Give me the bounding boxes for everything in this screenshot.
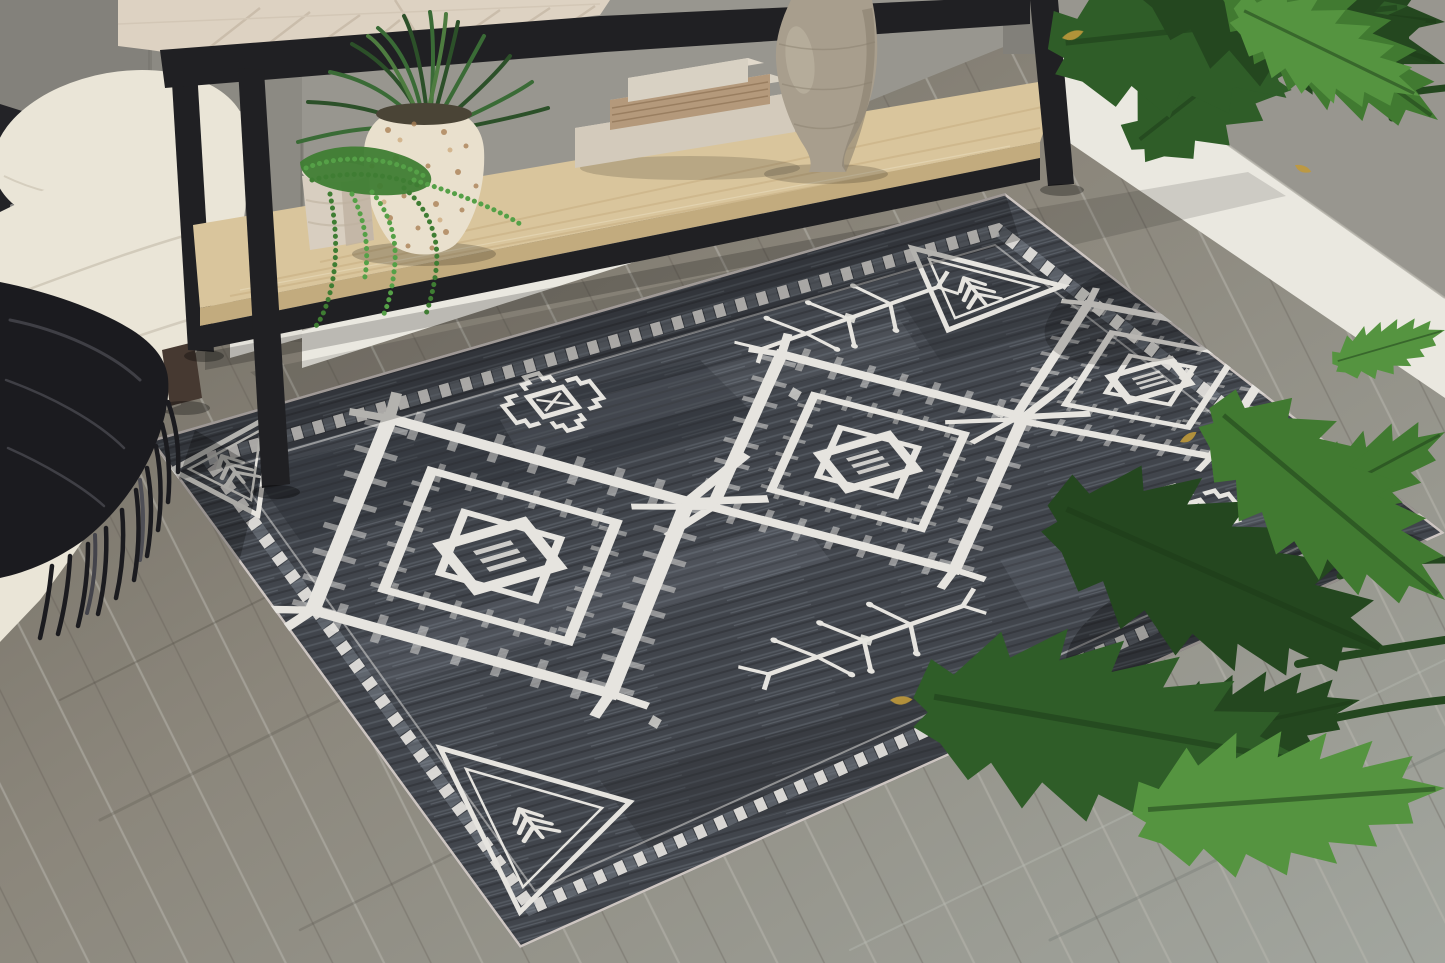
living-room-product-photo bbox=[0, 0, 1445, 963]
terrazzo-pot-rim bbox=[376, 103, 472, 125]
leg-shadow-front-right bbox=[1040, 184, 1084, 196]
leg-shadow-rear-left bbox=[184, 350, 224, 362]
scene-svg bbox=[0, 0, 1445, 963]
leg-shadow-front-left bbox=[252, 485, 300, 499]
